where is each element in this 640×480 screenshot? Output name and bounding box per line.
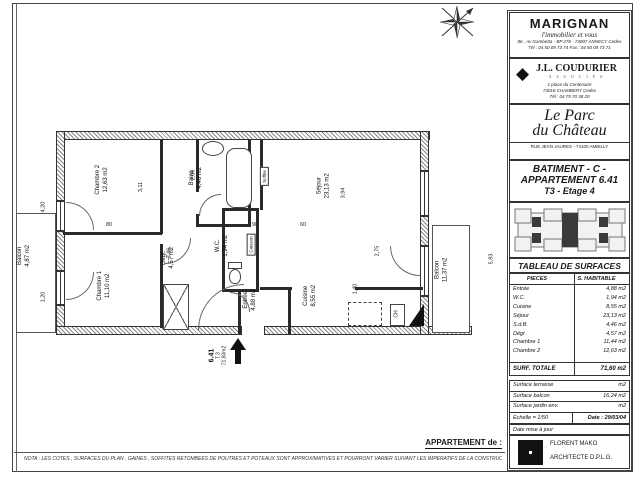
- toilet-tank: [228, 262, 242, 269]
- window-right-1: [420, 171, 429, 216]
- dimension-label: 4,20: [40, 202, 46, 213]
- marignan-phone: Tél : 04 50 09 73 74 Fax : 04 50 09 73 7…: [510, 45, 629, 51]
- balcony-left: [16, 213, 56, 333]
- surface-row: Chambre 212,63 m2: [510, 347, 629, 356]
- room-name: S.d.B.: [513, 321, 528, 330]
- door-balcony-sejour: [390, 246, 420, 276]
- apartment-surface: 71,60m2: [222, 334, 228, 378]
- extra-surfaces-block: Surface terrassem2Surface balcon16,24 m2…: [509, 380, 630, 412]
- room-name: Entrée: [513, 285, 529, 294]
- partition: [160, 140, 163, 234]
- floor-plan: CH Soffite Caisson 6.41 T.3 71,60m2 Balc…: [0, 0, 505, 450]
- extra-surface-label: Surface terrasse: [513, 381, 553, 391]
- surface-row: Entrée4,88 m2: [510, 285, 629, 294]
- update-date-label: Date mise à jour: [513, 425, 553, 435]
- partition: [355, 287, 423, 290]
- architect-logo-icon: [518, 440, 543, 465]
- room-label-name: Chambre 2: [95, 165, 103, 195]
- architect-title: ARCHITECTE D.P.L.G.: [550, 455, 612, 461]
- wall-right-a: [420, 131, 429, 171]
- marignan-block: MARIGNAN l'immobilier et vous 86 , Av Ga…: [509, 12, 630, 58]
- surface-total-label: SURF. TOTALE: [513, 363, 555, 376]
- surface-total-value: 71,60 m2: [601, 363, 626, 376]
- residence-name-2: du Château: [510, 122, 629, 140]
- diamond-icon: ◆: [516, 64, 529, 84]
- dimension-label: 5,93: [488, 254, 494, 265]
- extra-surface-value: m2: [618, 402, 626, 412]
- batiment-label: BATIMENT - C -: [510, 164, 629, 175]
- footer-rule: [14, 452, 505, 453]
- room-name: Cuisine: [513, 303, 531, 312]
- room-label: W.C.1,94 m2: [215, 235, 231, 257]
- door-bains: [199, 194, 221, 216]
- dimension-label: 60: [300, 222, 306, 228]
- extra-surface-label: Surface jardin env.: [513, 402, 558, 412]
- toilet-bowl: [229, 269, 241, 284]
- room-label-area: 4,46 m2: [197, 167, 205, 189]
- coudurier-phone: Tél : 04 79 70 38 20: [510, 94, 629, 100]
- wall-left-a: [56, 131, 65, 201]
- room-label-name: Entrée: [243, 289, 251, 311]
- extra-surface-rows: Surface terrassem2Surface balcon16,24 m2…: [510, 381, 629, 412]
- room-area: 4,46 m2: [606, 321, 626, 330]
- wall-left-b: [56, 231, 65, 271]
- room-label: Séjour23,13 m2: [317, 173, 333, 198]
- surface-row: Chambre 111,44 m2: [510, 338, 629, 347]
- residence-address: RUE JEAN JAURES - 74100 AMBILLY: [510, 142, 629, 150]
- room-label-name: Chambre 1: [97, 271, 105, 301]
- door-balcony-ch2: [66, 202, 94, 230]
- dimension-label: 1,20: [40, 292, 46, 303]
- room-label-name: Balcon: [434, 258, 442, 283]
- room-label-area: 11,37 m2: [442, 258, 450, 283]
- appartement-label: APPARTEMENT 6.41: [510, 175, 629, 186]
- room-label-name: W.C.: [215, 235, 223, 257]
- nota-text: NOTA : LES COTES , SURFACES DU PLAN , GA…: [24, 456, 502, 462]
- boiler-box: CH: [390, 304, 405, 326]
- appartement-de-label: APPARTEMENT de :: [350, 438, 502, 447]
- surfaces-title: TABLEAU DE SURFACES: [510, 261, 629, 271]
- room-area: 8,55 m2: [606, 303, 626, 312]
- extra-surface-value: 16,24 m2: [603, 392, 626, 402]
- coudurier-subtitle: A S S O C I E S: [524, 74, 629, 79]
- surfaces-col-pieces: PIECES: [510, 274, 564, 284]
- keyplan-block: [509, 202, 630, 258]
- extra-surface-label: Surface balcon: [513, 392, 550, 402]
- room-label: Balcon11,37 m2: [434, 258, 450, 283]
- room-label-area: 12,63 m2: [103, 165, 111, 195]
- scale-label: Echelle = 1/50: [513, 413, 548, 424]
- room-label: Chambre 212,63 m2: [95, 165, 111, 195]
- apartment-arrow-labels: 6.41 T.3 71,60m2: [209, 334, 228, 378]
- room-label-area: 4,87 m2: [25, 245, 33, 267]
- surface-row: Dégt4,57 m2: [510, 330, 629, 339]
- partition: [63, 232, 162, 235]
- surface-total-row: SURF. TOTALE 71,60 m2: [509, 362, 630, 376]
- total-row-divider: [574, 362, 575, 376]
- boiler-label: CH: [394, 310, 400, 317]
- surfaces-title-row: TABLEAU DE SURFACES: [509, 258, 630, 273]
- room-label: Balcon4,87 m2: [17, 245, 33, 267]
- marignan-tagline: l'immobilier et vous: [510, 31, 629, 39]
- scale-date-divider: [572, 412, 573, 424]
- surfaces-rows: Entrée4,88 m2W.C.1,94 m2Cuisine8,55 m2Sé…: [510, 285, 629, 356]
- partition: [256, 208, 259, 292]
- dimension-label: 3,86: [166, 248, 172, 259]
- room-area: 4,88 m2: [606, 285, 626, 294]
- closet: [163, 284, 189, 330]
- bathtub: [226, 148, 252, 208]
- type-etage-label: T3 - Etage 4: [510, 186, 629, 196]
- door-balcony-ch1: [66, 272, 94, 300]
- room-label-area: 8,55 m2: [311, 285, 319, 307]
- extra-surface-row: Surface balcon16,24 m2: [510, 392, 629, 403]
- caisson-tag: Caisson: [247, 233, 256, 255]
- scale-date-row: Echelle = 1/50 Date : 29/03/04: [509, 412, 630, 424]
- date-label: Date : 29/03/04: [588, 413, 626, 424]
- surface-row: Séjour23,13 m2: [510, 312, 629, 321]
- dimension-label: 2,75: [374, 246, 380, 257]
- dimension-label: 3,11: [138, 182, 144, 192]
- room-area: 12,63 m2: [603, 347, 626, 356]
- room-label-name: Balcon: [17, 245, 25, 267]
- coudurier-name: J.L. COUDURIER: [524, 63, 629, 74]
- building-keyplan-icon: [514, 205, 626, 255]
- surface-row: S.d.B.4,46 m2: [510, 321, 629, 330]
- room-name: W.C.: [513, 294, 525, 303]
- room-name: Chambre 2: [513, 347, 540, 356]
- room-label: Cuisine8,55 m2: [303, 285, 319, 307]
- architect-name: FLORENT MAKO: [550, 441, 597, 447]
- room-label-name: Cuisine: [303, 285, 311, 307]
- surfaces-table: PIECES S. HABITABLE Entrée4,88 m2W.C.1,9…: [509, 273, 630, 376]
- washbasin: [202, 141, 224, 156]
- room-label-area: 1,94 m2: [223, 235, 231, 257]
- dimension-label: 80: [106, 222, 112, 228]
- room-name: Séjour: [513, 312, 529, 321]
- room-label: Chambre 111,10 m2: [97, 271, 113, 301]
- surface-row: W.C.1,94 m2: [510, 294, 629, 303]
- dimension-label: 2,06: [190, 170, 196, 181]
- surfaces-table-divider: [574, 273, 575, 362]
- coudurier-block: ◆ J.L. COUDURIER A S S O C I E S 1 place…: [509, 58, 630, 104]
- extra-surface-value: m2: [618, 381, 626, 391]
- dimension-label: 3,94: [340, 188, 346, 199]
- surface-row: Cuisine8,55 m2: [510, 303, 629, 312]
- update-date-row: Date mise à jour: [509, 424, 630, 435]
- room-label-area: 11,10 m2: [105, 271, 113, 301]
- room-label: Entrée4,88 m2: [243, 289, 259, 311]
- room-label-area: 23,13 m2: [325, 173, 333, 198]
- dimension-label: 90: [252, 222, 258, 228]
- compass-north-icon: [436, 2, 478, 42]
- window-left-1: [56, 201, 65, 231]
- extra-surface-row: Surface jardin env.m2: [510, 402, 629, 412]
- room-label-area: 4,88 m2: [251, 289, 259, 311]
- wall-top: [60, 131, 430, 140]
- duct-triangle: [409, 304, 424, 326]
- room-area: 11,44 m2: [603, 338, 626, 347]
- residence-block: Le Parc du Château RUE JEAN JAURES - 741…: [509, 104, 630, 160]
- extra-surface-row: Surface terrassem2: [510, 381, 629, 392]
- partition: [288, 290, 291, 334]
- dimension-label: 1,40: [352, 284, 358, 295]
- room-name: Dégt: [513, 330, 525, 339]
- room-area: 23,13 m2: [603, 312, 626, 321]
- window-left-2: [56, 271, 65, 305]
- partition: [222, 208, 259, 211]
- drawing-sheet: CH Soffite Caisson 6.41 T.3 71,60m2 Balc…: [0, 0, 640, 480]
- room-name: Chambre 1: [513, 338, 540, 347]
- room-area: 4,57 m2: [606, 330, 626, 339]
- apartment-number: 6.41: [209, 334, 216, 378]
- kitchen-counter: [348, 302, 382, 326]
- architect-block: FLORENT MAKO ARCHITECTE D.P.L.G.: [509, 435, 630, 469]
- soffite-tag: Soffite: [260, 167, 269, 186]
- wall-right-b: [420, 216, 429, 246]
- room-area: 1,94 m2: [606, 294, 626, 303]
- room-label-name: Séjour: [317, 173, 325, 198]
- apartment-block: BATIMENT - C - APPARTEMENT 6.41 T3 - Eta…: [509, 160, 630, 202]
- marignan-name: MARIGNAN: [510, 16, 629, 31]
